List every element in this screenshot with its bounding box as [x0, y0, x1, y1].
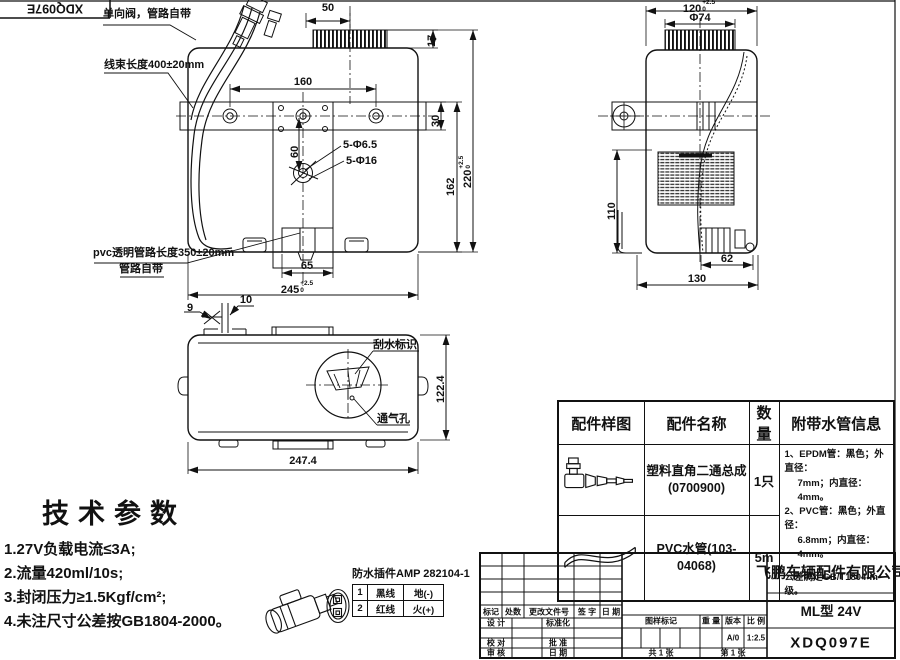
- pin-no: 2: [353, 601, 368, 617]
- callout-check-valve: 单向阀，管路自带: [103, 9, 191, 20]
- dim-top-width: 247.4: [289, 456, 317, 467]
- callout-pvc-tube-2: 管路自带: [119, 264, 163, 275]
- tb-company-name: 飞鹏车辆配件有限公司: [756, 562, 900, 583]
- tb-mark-label: 图样标记: [645, 616, 677, 627]
- callout-pvc-tube-1: pvc透明管路长度350±20mm: [93, 248, 234, 259]
- part-name-1: 塑料直角二通总成 (0700900): [644, 445, 749, 516]
- dim-pump-offset: 62: [721, 254, 733, 265]
- pin-role: 地(-): [404, 585, 444, 601]
- drawing-sheet: XDQ097E 单向阀，管路自带 线束长度400±20mm pvc透明管路长度3…: [0, 0, 900, 660]
- connector-drawing: [260, 578, 349, 635]
- dim-body-height: 162: [446, 178, 457, 196]
- parts-row-elbow: 塑料直角二通总成 (0700900) 1只 1、EPDM管：黑色；外直径： 7m…: [558, 445, 894, 516]
- connector-pin-table: 1 黑线 地(-) 2 红线 火(+): [352, 584, 444, 617]
- dim-clip-a: 9: [187, 303, 193, 314]
- leader-lines: [94, 25, 419, 425]
- warning-label: [658, 152, 734, 205]
- tb-sheet-index: 第 1 张: [721, 648, 746, 659]
- dim-base-width: 130: [688, 274, 706, 285]
- connector-title: 防水插件AMP 282104-1: [352, 569, 470, 580]
- pin-row-1: 1 黑线 地(-): [353, 585, 444, 601]
- dim-hole-offset: 60: [290, 146, 301, 158]
- callout-holes-small: 5-Φ6.5: [343, 140, 377, 151]
- pin-wire: 红线: [368, 601, 404, 617]
- dim-cap-width: 50: [322, 3, 334, 14]
- pin-row-2: 2 红线 火(+): [353, 601, 444, 617]
- dim-side-body-height: 110: [607, 202, 618, 220]
- tb-role-standard: 标准化: [546, 618, 570, 629]
- col-qty: 数量: [749, 401, 779, 445]
- pvc-tube-drawing: [558, 516, 644, 601]
- tb-sheet-total: 共 1 张: [649, 648, 674, 659]
- col-pipe-info: 附带水管信息: [779, 401, 894, 445]
- pin-no: 1: [353, 585, 368, 601]
- tb-drawing-number: XDQ097E: [790, 635, 872, 652]
- tech-params-title: 技术参数: [42, 501, 186, 528]
- dim-clip-b: 10: [240, 295, 252, 306]
- harness-wires: [191, 6, 260, 249]
- dim-pump-span: 65: [301, 261, 313, 272]
- tech-param-2: 2.流量420ml/10s;: [4, 566, 123, 581]
- tb-version-label: 版本: [725, 616, 741, 627]
- tb-model: ML型 24V: [801, 600, 862, 620]
- tb-rev-count: 处数: [505, 607, 521, 618]
- part-qty-1: 1只: [749, 445, 779, 516]
- dim-total-width: 245+2.50: [281, 281, 313, 296]
- callout-vent-hole: 通气孔: [377, 414, 410, 425]
- side-view-linework: [610, 30, 757, 253]
- tb-version-value: A/0: [727, 634, 739, 643]
- pin-wire: 黑线: [368, 585, 404, 601]
- elbow-fitting-drawing: [558, 445, 644, 516]
- centerlines: [176, 6, 772, 421]
- part-name-2: PVC水管(103-04068): [644, 516, 749, 601]
- dim-band-height: 30: [431, 115, 442, 127]
- tech-param-4: 4.未注尺寸公差按GB1804-2000。: [4, 614, 231, 629]
- callout-wiper-mark: 刮水标识: [373, 340, 417, 351]
- tb-scale-label: 比 例: [747, 616, 765, 627]
- tb-rev-docno: 更改文件号: [529, 607, 569, 618]
- tb-rev-sign: 签 字: [578, 607, 596, 618]
- callout-holes-big: 5-Φ16: [346, 156, 377, 167]
- tb-role-audit: 审 核: [487, 648, 505, 659]
- dim-cap-height: 17: [427, 35, 438, 47]
- callout-harness-length: 线束长度400±20mm: [104, 60, 204, 71]
- parts-header-row: 配件样图 配件名称 数量 附带水管信息: [558, 401, 894, 445]
- pin-role: 火(+): [404, 601, 444, 617]
- col-sample: 配件样图: [558, 401, 644, 445]
- tb-role-design: 设 计: [487, 618, 505, 629]
- corner-drawing-code: XDQ097E: [8, 2, 102, 15]
- top-view-linework: [178, 303, 428, 449]
- check-valve-drawing: [227, 0, 282, 50]
- dim-cap-diameter: Φ74: [689, 13, 710, 24]
- tb-rev-mark: 标记: [483, 607, 499, 618]
- dim-hole-span: 160: [294, 77, 312, 88]
- tech-param-3: 3.封闭压力≥1.5Kgf/cm²;: [4, 590, 166, 605]
- dim-top-depth: 122.4: [436, 375, 447, 403]
- part-qty-2: 5m: [749, 516, 779, 601]
- dim-total-height: 220+2.50: [459, 156, 474, 188]
- tb-scale-value: 1:2.5: [747, 634, 765, 643]
- tb-role-date: 日 期: [549, 648, 567, 659]
- tb-rev-date: 日 期: [602, 607, 620, 618]
- tb-weight-label: 重 量: [702, 616, 720, 627]
- tech-param-1: 1.27V负载电流≤3A;: [4, 542, 136, 557]
- col-name: 配件名称: [644, 401, 749, 445]
